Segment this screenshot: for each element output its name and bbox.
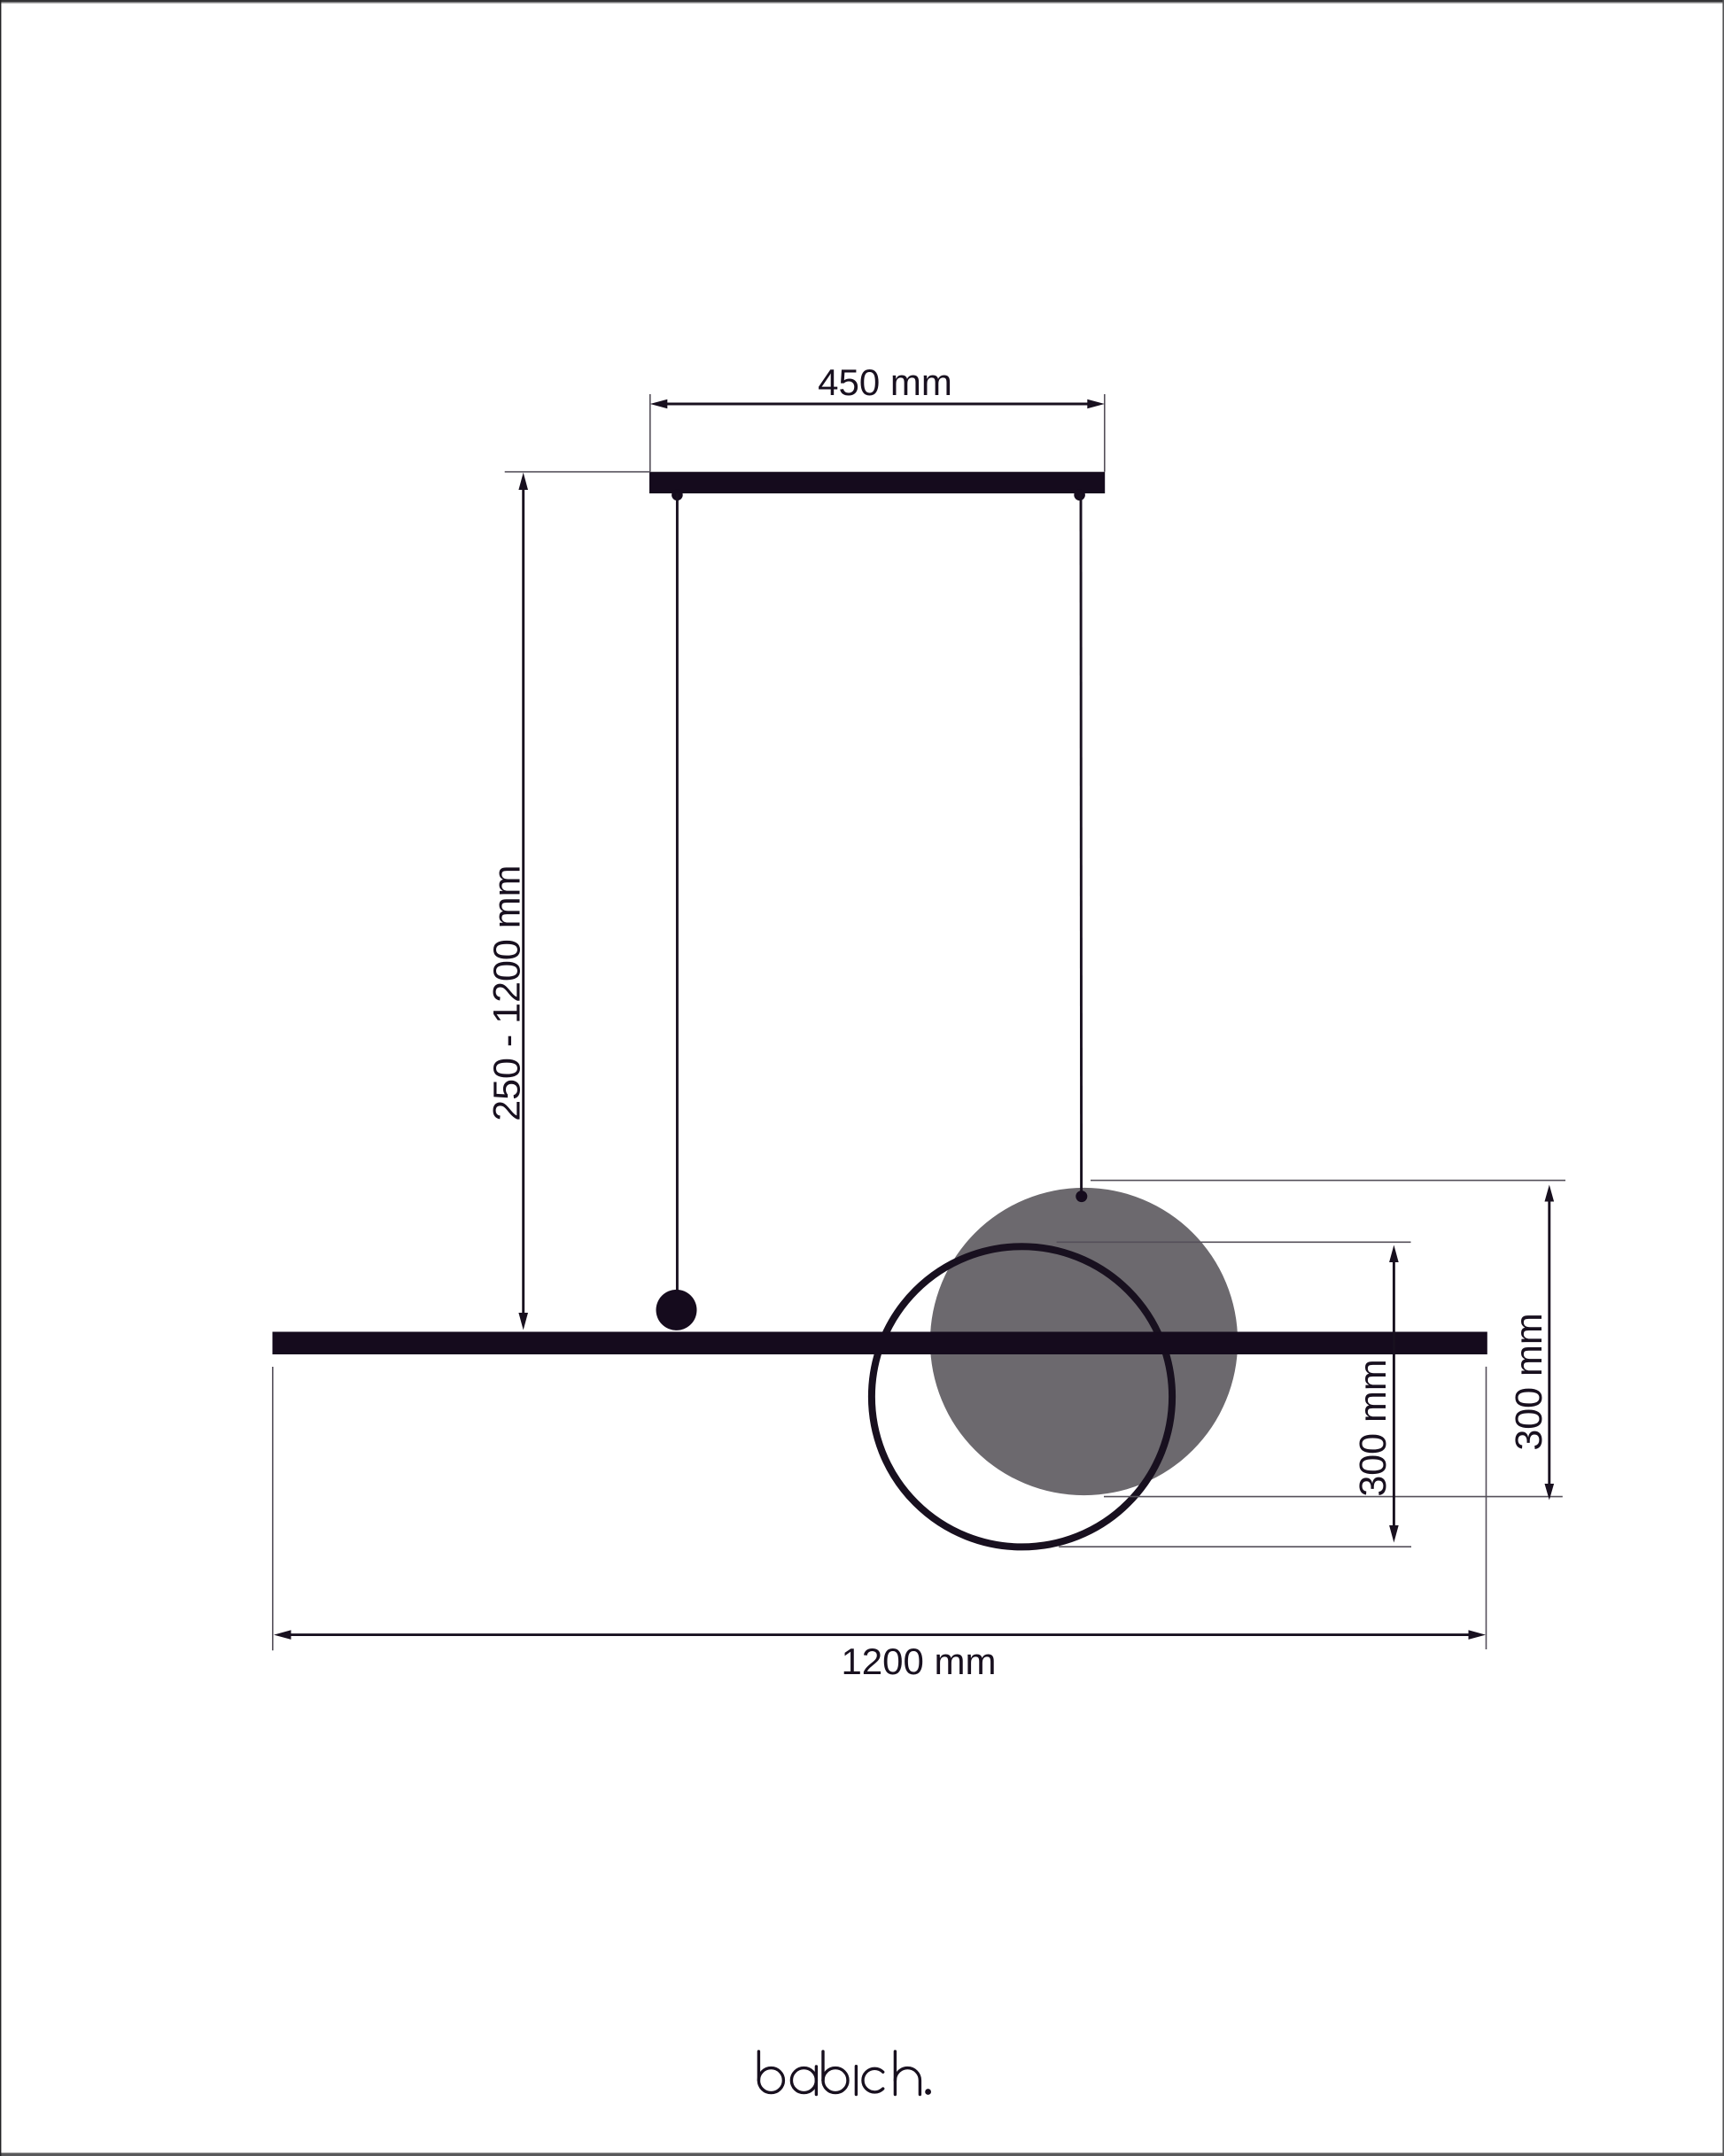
- svg-text:1200 mm: 1200 mm: [841, 1640, 996, 1682]
- svg-text:450 mm: 450 mm: [818, 361, 952, 403]
- svg-text:250 - 1200 mm: 250 - 1200 mm: [486, 865, 529, 1121]
- svg-text:300 mm: 300 mm: [1352, 1359, 1394, 1496]
- svg-text:300 mm: 300 mm: [1508, 1313, 1550, 1450]
